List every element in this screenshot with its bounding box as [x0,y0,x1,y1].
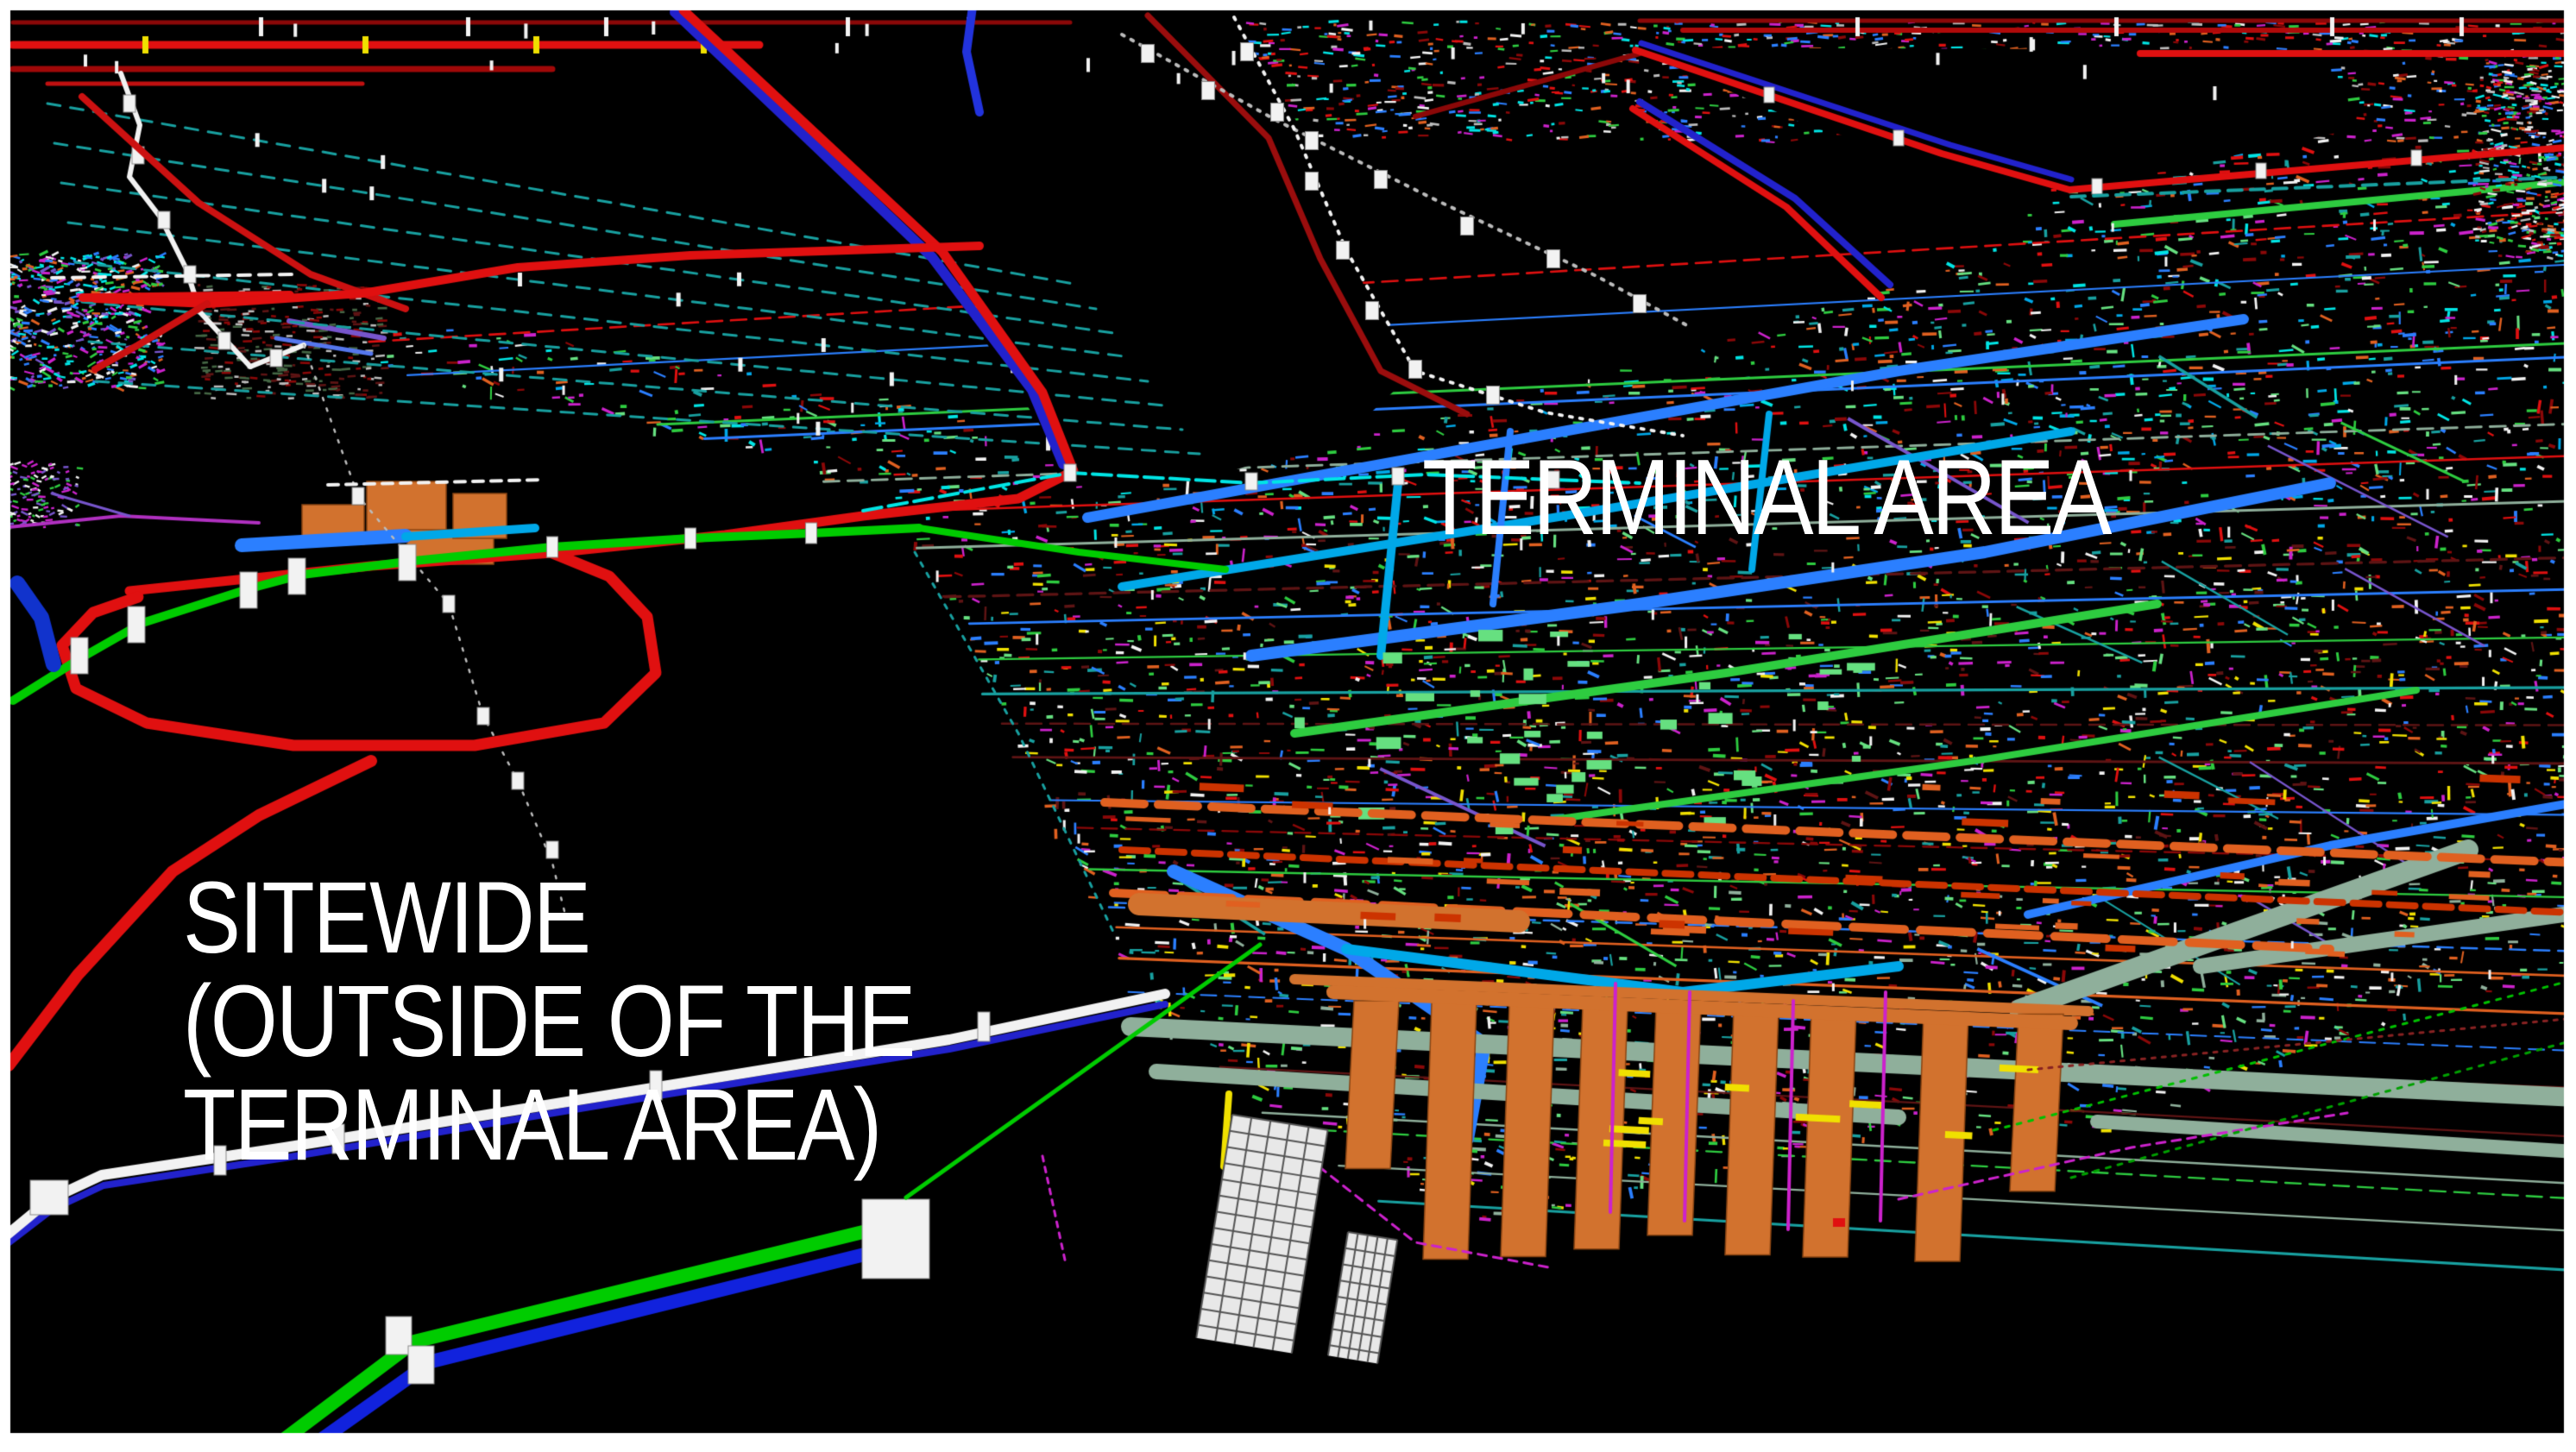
3d-model-viewport[interactable] [0,0,2576,1452]
terminal-area-label: TERMINAL AREA [1422,437,2110,559]
bim-model-screenshot: TERMINAL AREA SITEWIDE (OUTSIDE OF THE T… [0,0,2576,1452]
sitewide-label-line1: SITEWIDE [183,866,915,970]
sitewide-label-line2: (OUTSIDE OF THE [183,970,915,1073]
sitewide-label: SITEWIDE (OUTSIDE OF THE TERMINAL AREA) [183,866,915,1177]
sitewide-label-line3: TERMINAL AREA) [183,1073,915,1177]
